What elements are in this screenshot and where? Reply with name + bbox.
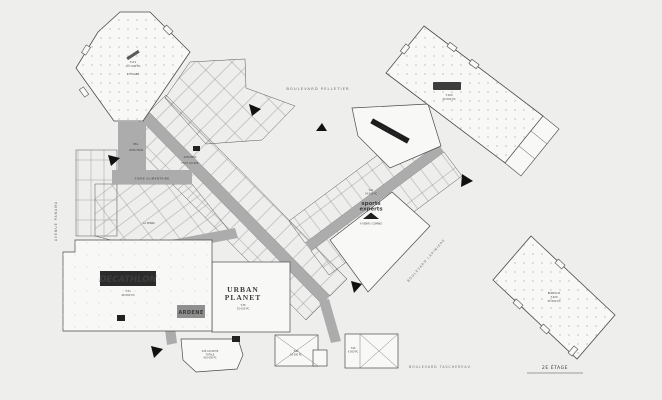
annex-line3: 410 000 PC: [203, 357, 217, 360]
avril-logo-text: AVRIL: [438, 84, 456, 89]
urban-planet-line2: PLANET: [225, 293, 261, 302]
mall-floor-plan: BOULEVARD PELLETIER AVENUE PANAMA BOULEV…: [0, 0, 662, 400]
anchor-se-line2: T-200: [550, 295, 558, 299]
anchor-nw-area: 117 000 PC: [126, 64, 141, 68]
food-court-label: FOIRE ALIMENTAIRE: [135, 177, 170, 181]
street-panama: AVENUE PANAMA: [54, 201, 58, 241]
decathlon-logo-text: DECATHLON: [99, 275, 156, 285]
pad-west-area: 10 000 PC: [290, 353, 302, 356]
pad-east-area: 6 500 PC: [348, 350, 359, 353]
anchor-se-line1: BUREAUX: [548, 291, 561, 295]
sports-experts-line2: experts: [359, 207, 382, 213]
anchor-ne-unit: T-100: [445, 93, 453, 97]
urban-planet-area: 25 000 PC: [237, 308, 250, 311]
unit-label-skechers: SKECHERS: [184, 156, 197, 159]
anchor-ne-area: 40 000 PC: [442, 97, 455, 101]
sports-experts-area: 34 000 PC: [365, 193, 378, 196]
unit-label-bell: BELL: [133, 143, 139, 146]
street-pelletier: BOULEVARD PELLETIER: [286, 86, 349, 91]
unit-label-footlocker: FOOT LOCKER: [182, 162, 199, 165]
unit-label-lasenza: LA SENZA: [143, 222, 155, 225]
decathlon-area: 48 000 PC: [121, 293, 134, 297]
anchor-se-line3: 45 000 PC: [547, 299, 560, 303]
pad-west-sub: [313, 350, 327, 366]
ardene-logo-text: ARDENE: [178, 310, 203, 316]
door-urban: [232, 336, 240, 342]
decathlon-unit: T-51: [125, 289, 131, 293]
door-central: [193, 146, 200, 151]
street-taschereau: BOULEVARD TASCHEREAU: [409, 365, 471, 369]
unit-label-videotron: VIDÉOTRON: [129, 149, 144, 152]
sports-experts-status: À VENIR / COMING: [360, 223, 382, 226]
anchor-nw-unit: T-01: [129, 60, 137, 64]
door-decathlon: [117, 315, 125, 321]
floor-plan-svg: BOULEVARD PELLETIER AVENUE PANAMA BOULEV…: [0, 0, 662, 400]
